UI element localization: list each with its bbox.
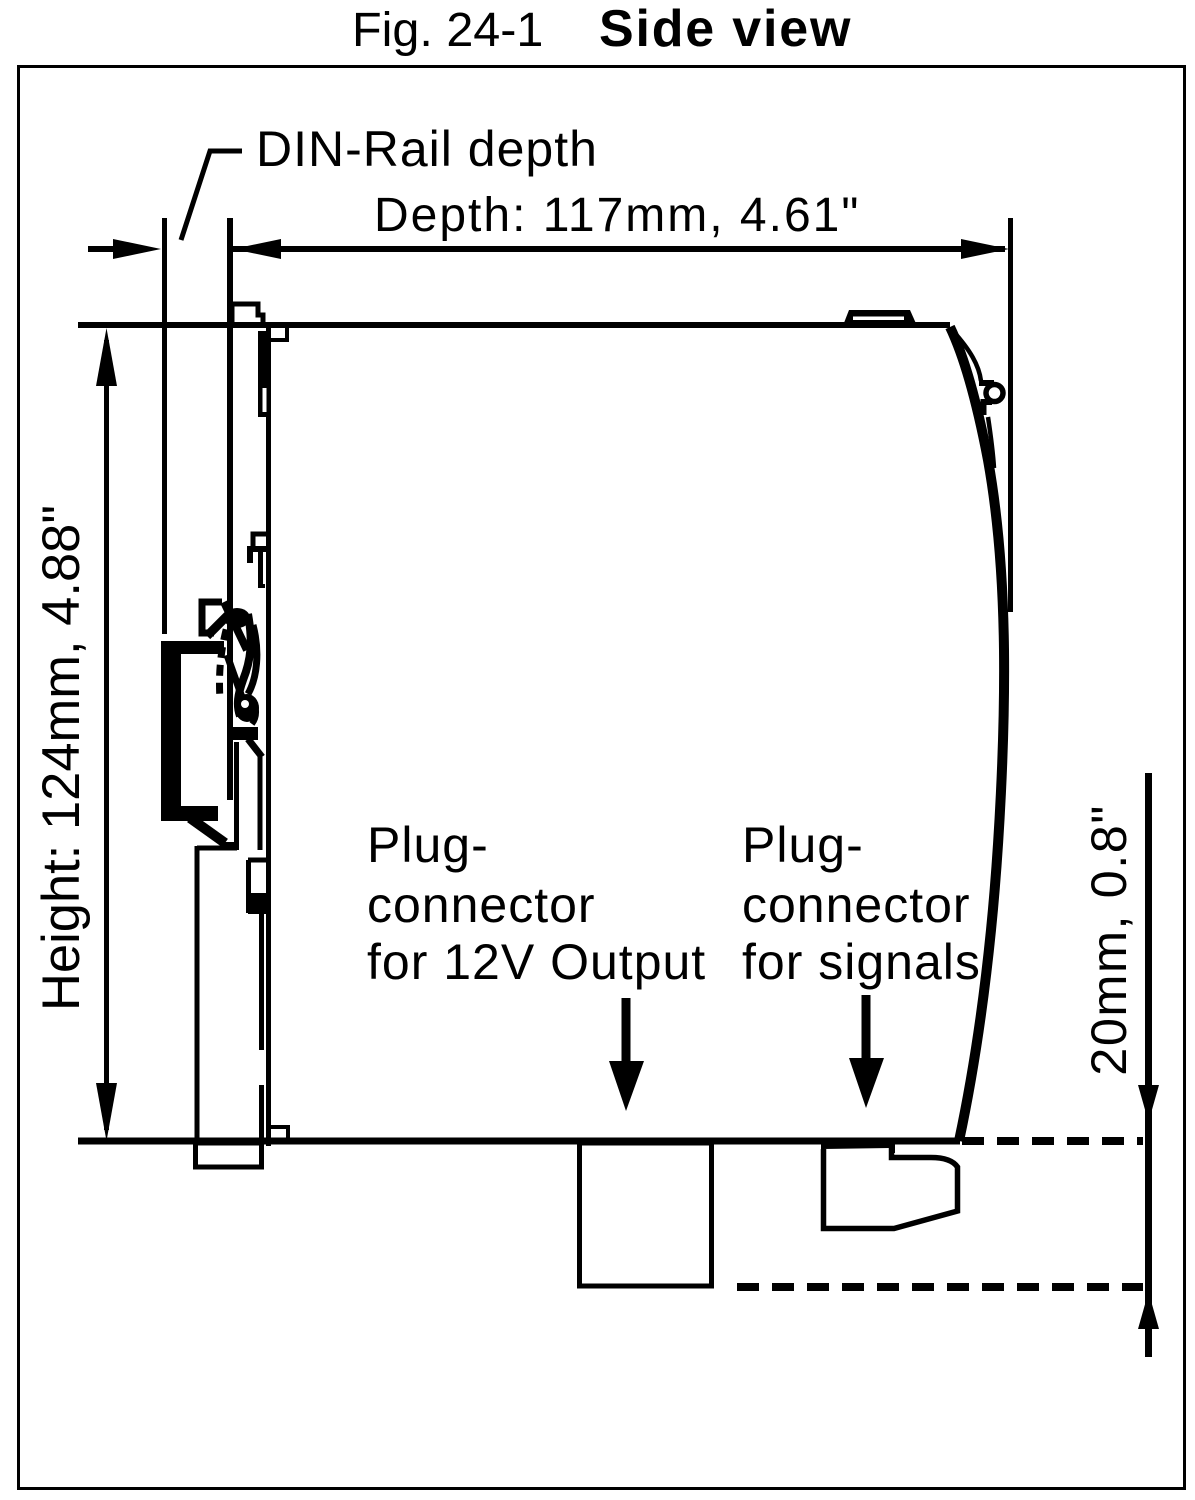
- svg-text:Plug-: Plug-: [367, 817, 489, 873]
- svg-text:Height: 124mm, 4.88": Height: 124mm, 4.88": [32, 505, 91, 1011]
- svg-text:Plug-: Plug-: [742, 817, 864, 873]
- svg-text:connector: connector: [367, 877, 596, 933]
- svg-text:for 12V Output: for 12V Output: [367, 934, 706, 990]
- svg-text:Depth: 117mm, 4.61": Depth: 117mm, 4.61": [374, 189, 860, 242]
- svg-text:Fig. 24-1: Fig. 24-1: [352, 3, 543, 57]
- svg-text:for signals: for signals: [742, 934, 981, 990]
- svg-text:connector: connector: [742, 877, 971, 933]
- svg-text:Side view: Side view: [599, 0, 852, 58]
- svg-text:DIN-Rail depth: DIN-Rail depth: [256, 121, 598, 177]
- svg-text:20mm, 0.8": 20mm, 0.8": [1080, 804, 1137, 1076]
